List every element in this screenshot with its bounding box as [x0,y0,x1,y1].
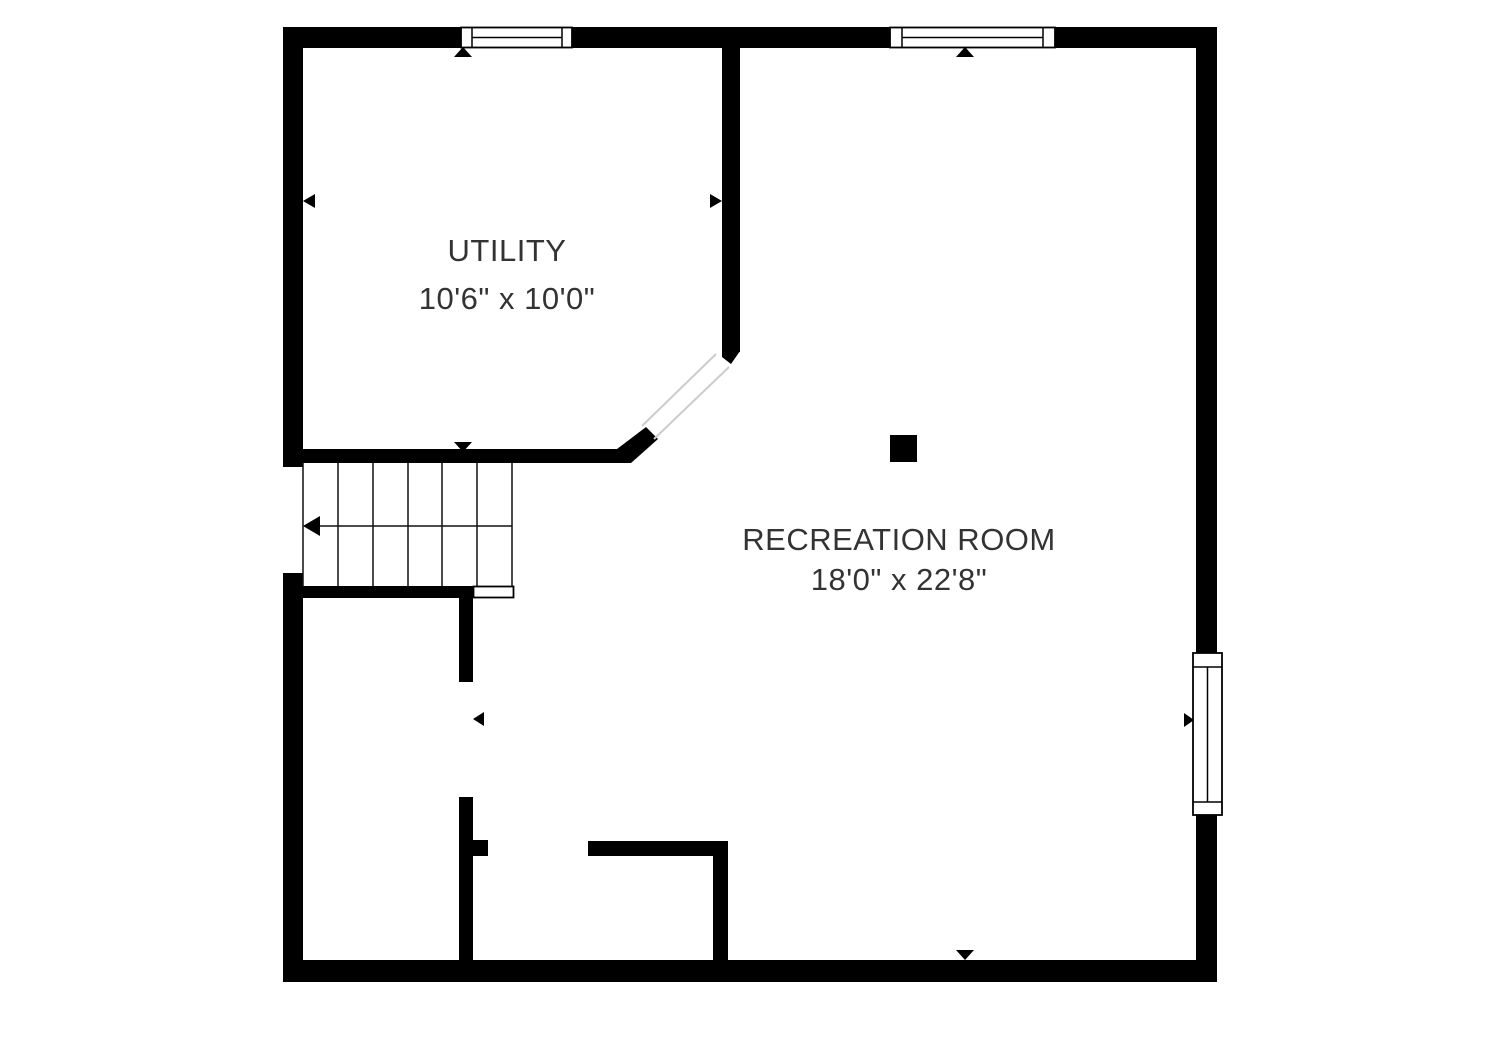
marker-right-icon [710,194,722,208]
marker-left-icon [303,194,315,208]
bottom-exterior-wall [283,960,1217,982]
left-exterior-wall-upper [283,27,303,467]
recreation-room-name: RECREATION ROOM [742,522,1056,557]
left-exterior-wall-lower [283,573,303,982]
floor-plan-drawing: UTILITY 10'6" x 10'0" RECREATION ROOM 18… [0,0,1500,1041]
utility-room-dimensions: 10'6" x 10'0" [419,281,596,316]
bottom-room-wall-horizontal [588,841,728,856]
marker-up-icon [454,47,472,57]
top-exterior-wall [283,27,1217,48]
measurement-markers [303,47,1194,960]
utility-room-name: UTILITY [448,233,567,268]
top-left-window [461,28,572,48]
hall-wall-lower-segment [459,797,473,962]
utility-bottom-wall [283,449,614,463]
marker-up-icon [956,47,974,57]
support-column [890,435,917,462]
hall-wall-stub [473,840,488,856]
windows [461,28,1222,816]
hall-wall-upper-segment [459,598,473,682]
stair-direction-arrow-icon [303,516,320,536]
utility-diagonal-wall [604,427,658,463]
stair-landing-edge [474,587,514,598]
utility-right-wall-tip [722,351,740,364]
bottom-room-wall-vertical [713,841,728,962]
marker-down-icon [956,950,974,960]
marker-left-icon [473,712,484,726]
utility-right-wall [722,48,740,352]
recreation-room-dimensions: 18'0" x 22'8" [811,562,988,597]
interior-walls [459,598,728,962]
floor-plan-page: UTILITY 10'6" x 10'0" RECREATION ROOM 18… [0,0,1500,1041]
right-wall-window [1193,653,1222,815]
right-exterior-wall-lower [1196,815,1217,982]
exterior-walls [283,27,1217,982]
top-right-window [890,28,1055,48]
right-exterior-wall-upper [1196,27,1217,653]
staircase [303,463,514,598]
diagonal-door-opening [642,354,729,439]
